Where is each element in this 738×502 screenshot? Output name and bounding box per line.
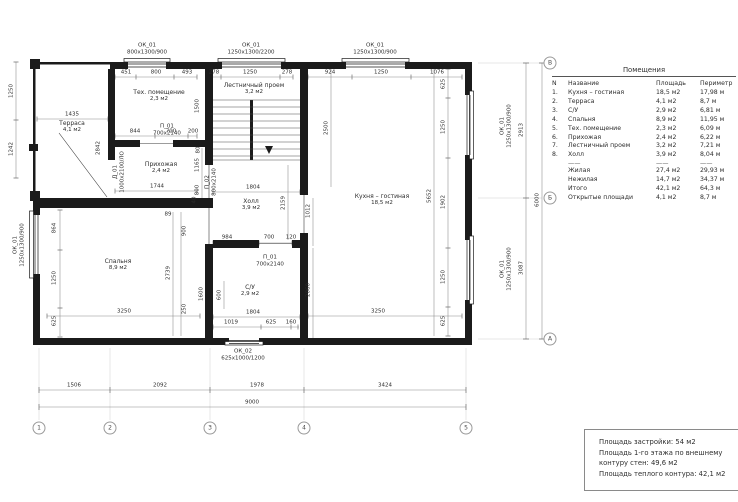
cell-perimeter: 8,04 м: [700, 151, 736, 160]
opening-code: ОК_01: [499, 247, 506, 291]
header-name: Название: [568, 79, 656, 89]
cell-num: [552, 167, 568, 176]
dimension-label: 278: [209, 70, 220, 77]
cell-area: 27,4 м2: [656, 167, 700, 176]
note-line: Площадь 1-го этажа по внешнему контуру с…: [599, 448, 737, 469]
cell-num: 6.: [552, 134, 568, 143]
cell-area: ——: [656, 160, 700, 167]
dimension-label: 1435: [65, 112, 79, 119]
cell-area: 2,3 м2: [656, 125, 700, 134]
dimension-label: 1250: [441, 120, 448, 134]
cell-perimeter: 29,93 м: [700, 167, 736, 176]
cell-name: Итого: [568, 185, 656, 194]
table-row: Жилая27,4 м229,93 м: [552, 167, 736, 176]
opening-code: П_02: [204, 168, 211, 196]
cell-num: 7.: [552, 142, 568, 151]
opening-size: 1250х1300/900: [19, 223, 26, 267]
cell-perimeter: 7,21 м: [700, 142, 736, 151]
opening-code: П_01: [256, 254, 284, 261]
cell-area: 3,9 м2: [656, 151, 700, 160]
area-notes-lines: Площадь застройки: 54 м2Площадь 1-го эта…: [599, 437, 737, 479]
room-name: Лестничный проем: [224, 82, 284, 89]
room-area: 4,1 м2: [59, 127, 85, 134]
dimension-label: 80: [196, 147, 203, 154]
rooms-table-header: N Название Площадь Периметр: [552, 79, 736, 89]
axis-bubble: 2: [104, 422, 117, 435]
dimension-label: 1165: [195, 158, 202, 172]
dimension-label: 2739: [166, 266, 173, 280]
room-area: 2,3 м2: [133, 96, 184, 103]
cell-area: 4,1 м2: [656, 194, 700, 203]
dimension-label: 900: [182, 226, 189, 237]
opening-label: П_01700х2140: [153, 123, 181, 136]
cell-num: 2.: [552, 98, 568, 107]
rooms-table-rule: [552, 76, 736, 77]
cell-perimeter: 34,37 м: [700, 176, 736, 185]
opening-size: 625х1000/1200: [221, 355, 265, 362]
room-label: Терраса4,1 м2: [59, 120, 85, 134]
dimension-label: 1250: [243, 70, 257, 77]
room-label: С/У2,9 м2: [241, 284, 259, 298]
dimension-label: 1600: [199, 287, 206, 301]
note-line: Площадь теплого контура: 42,1 м2: [599, 469, 737, 480]
table-row: 2.Терраса4,1 м28,7 м: [552, 98, 736, 107]
cell-perimeter: 11,95 м: [700, 116, 736, 125]
dimension-label: 1500: [195, 99, 202, 113]
opening-code: П_01: [153, 123, 181, 130]
dimension-label: 89: [165, 212, 172, 219]
opening-code: ОК_01: [227, 42, 274, 49]
cell-num: 3.: [552, 107, 568, 116]
cell-name: Спальня: [568, 116, 656, 125]
room-name: Спальня: [105, 258, 132, 265]
table-row: 5.Тех. помещение2,3 м26,09 м: [552, 125, 736, 134]
dimension-label: 5652: [427, 189, 434, 203]
cell-num: 1.: [552, 89, 568, 98]
dimension-label: 2092: [153, 383, 167, 390]
dimension-label: 3424: [378, 383, 392, 390]
room-label: Спальня8,9 м2: [105, 258, 132, 272]
opening-label: ОК_011250х1300/900: [499, 104, 512, 148]
opening-size: 800х2140: [211, 168, 218, 196]
dimension-label: 120: [286, 235, 297, 242]
cell-area: 3,2 м2: [656, 142, 700, 151]
cell-num: [552, 160, 568, 167]
rooms-table-title: Помещения: [552, 66, 736, 76]
dimension-label: 1019: [224, 320, 238, 327]
dimension-label: 600: [217, 290, 224, 301]
dimension-label: 3250: [371, 309, 385, 316]
dimension-label: 1242: [9, 142, 16, 156]
cell-name: С/У: [568, 107, 656, 116]
axis-bubble: А: [544, 333, 557, 346]
dimension-label: 625: [441, 79, 448, 90]
opening-label: П_02800х2140: [204, 168, 217, 196]
room-name: Холл: [242, 198, 260, 205]
dimension-label: 2842: [96, 141, 103, 155]
table-row: ——————: [552, 160, 736, 167]
cell-num: 8.: [552, 151, 568, 160]
room-area: 2,9 м2: [241, 291, 259, 298]
dimension-label: 1506: [67, 383, 81, 390]
cell-name: Лестничный проем: [568, 142, 656, 151]
cell-perimeter: 8,7 м: [700, 194, 736, 203]
header-num: N: [552, 79, 568, 89]
cell-name: Холл: [568, 151, 656, 160]
table-row: Итого42,1 м264,3 м: [552, 185, 736, 194]
dimension-label: 1250: [52, 271, 59, 285]
room-label: Холл3,9 м2: [242, 198, 260, 212]
dimension-label: 2159: [281, 196, 288, 210]
cell-num: [552, 194, 568, 203]
opening-label: ОК_011250х1300/900: [353, 42, 397, 55]
cell-name: ——: [568, 160, 656, 167]
stairs: [213, 100, 300, 160]
axis-bubble: 5: [460, 422, 473, 435]
dimension-label: 1012: [306, 204, 313, 218]
cell-name: Кухня – гостиная: [568, 89, 656, 98]
dimension-label: 6000: [535, 193, 542, 207]
dimension-label: 2060: [306, 283, 313, 297]
dimension-label: 800: [151, 70, 162, 77]
dimension-label: 1076: [430, 70, 444, 77]
dimension-label: 250: [182, 304, 189, 315]
opening-size: 1250х1300/900: [353, 49, 397, 56]
cell-area: 14,7 м2: [656, 176, 700, 185]
dimension-label: 451: [121, 70, 132, 77]
dimension-label: 278: [282, 70, 293, 77]
table-row: 3.С/У2,9 м26,81 м: [552, 107, 736, 116]
opening-size: 1250х1300/900: [506, 247, 513, 291]
axis-bubble: 4: [298, 422, 311, 435]
axis-bubble: 3: [204, 422, 217, 435]
opening-code: ОК_01: [353, 42, 397, 49]
cell-perimeter: 17,98 м: [700, 89, 736, 98]
dimension-label: 700: [264, 235, 275, 242]
dimension-label: 2500: [324, 121, 331, 135]
opening-label: ОК_011250х1300/2200: [227, 42, 274, 55]
opening-code: ОК_02: [221, 348, 265, 355]
room-name: Кухня – гостиная: [355, 193, 409, 200]
room-name: С/У: [241, 284, 259, 291]
cell-name: Нежилая: [568, 176, 656, 185]
opening-label: П_01700х2140: [256, 254, 284, 267]
cell-area: 42,1 м2: [656, 185, 700, 194]
opening-code: ОК_01: [127, 42, 167, 49]
header-perimeter: Периметр: [700, 79, 736, 89]
cell-name: Открытые площади: [568, 194, 656, 203]
cell-num: 4.: [552, 116, 568, 125]
cell-perimeter: 6,22 м: [700, 134, 736, 143]
dimension-label: 1250: [374, 70, 388, 77]
table-row: 7.Лестничный проем3,2 м27,21 м: [552, 142, 736, 151]
dimension-label: 1978: [250, 383, 264, 390]
room-label: Тех. помещение2,3 м2: [133, 89, 184, 103]
room-area: 18,5 м2: [355, 200, 409, 207]
table-row: Открытые площади4,1 м28,7 м: [552, 194, 736, 203]
area-notes-box: Площадь застройки: 54 м2Площадь 1-го эта…: [584, 429, 738, 491]
dimension-label: 9000: [245, 400, 259, 407]
room-label: Лестничный проем3,2 м2: [224, 82, 284, 96]
table-row: 1.Кухня – гостиная18,5 м217,98 м: [552, 89, 736, 98]
cell-num: [552, 185, 568, 194]
room-name: Тех. помещение: [133, 89, 184, 96]
dimension-label: 1744: [150, 184, 164, 191]
cell-num: [552, 176, 568, 185]
cell-area: 2,4 м2: [656, 134, 700, 143]
dimension-label: 3087: [519, 261, 526, 275]
room-area: 8,9 м2: [105, 265, 132, 272]
dimension-label: 2913: [519, 123, 526, 137]
opening-size: 1000х2100/ЛО: [119, 151, 126, 193]
opening-label: Д_011000х2100/ЛО: [112, 151, 125, 193]
rooms-table-rows: 1.Кухня – гостиная18,5 м217,98 м2.Террас…: [552, 89, 736, 203]
dimension-label: 625: [441, 316, 448, 327]
cell-perimeter: 64,3 м: [700, 185, 736, 194]
dimension-label: 625: [266, 320, 277, 327]
dimension-label: 3250: [117, 309, 131, 316]
room-label: Кухня – гостиная18,5 м2: [355, 193, 409, 207]
opening-size: 700х2140: [153, 130, 181, 137]
opening-label: ОК_011250х1300/900: [12, 223, 25, 267]
opening-size: 1250х1300/2200: [227, 49, 274, 56]
dimension-label: 864: [52, 223, 59, 234]
table-row: 8.Холл3,9 м28,04 м: [552, 151, 736, 160]
cell-name: Терраса: [568, 98, 656, 107]
dimension-label: 1250: [441, 270, 448, 284]
opening-size: 800х1300/900: [127, 49, 167, 56]
cell-area: 4,1 м2: [656, 98, 700, 107]
room-label: Прихожая2,4 м2: [145, 161, 177, 175]
dimension-label: 1902: [441, 195, 448, 209]
room-area: 3,9 м2: [242, 205, 260, 212]
room-area: 3,2 м2: [224, 89, 284, 96]
room-name: Прихожая: [145, 161, 177, 168]
cell-perimeter: 6,81 м: [700, 107, 736, 116]
opening-label: ОК_011250х1300/900: [499, 247, 512, 291]
cell-area: 18,5 м2: [656, 89, 700, 98]
opening-size: 1250х1300/900: [506, 104, 513, 148]
dimension-label: 40: [192, 197, 199, 204]
table-row: Нежилая14,7 м234,37 м: [552, 176, 736, 185]
dimension-label: 1804: [246, 185, 260, 192]
dimension-label: 160: [286, 320, 297, 327]
dimension-label: 625: [52, 316, 59, 327]
dimension-label: 984: [222, 235, 233, 242]
dimension-label: 493: [182, 70, 193, 77]
opening-code: ОК_01: [499, 104, 506, 148]
axis-bubble: 1: [33, 422, 46, 435]
floor-plan-sheet: 4518004932781250278924125010761435125012…: [0, 0, 738, 502]
dimension-label: 844: [130, 129, 141, 136]
cell-area: 8,9 м2: [656, 116, 700, 125]
cell-area: 2,9 м2: [656, 107, 700, 116]
cell-num: 5.: [552, 125, 568, 134]
opening-code: ОК_01: [12, 223, 19, 267]
dimension-label: 1804: [246, 310, 260, 317]
dimension-label: 924: [325, 70, 336, 77]
opening-label: ОК_02625х1000/1200: [221, 348, 265, 361]
dimension-label: 200: [188, 129, 199, 136]
header-area: Площадь: [656, 79, 700, 89]
cell-perimeter: 8,7 м: [700, 98, 736, 107]
room-area: 2,4 м2: [145, 168, 177, 175]
cell-name: Жилая: [568, 167, 656, 176]
dimension-label: 800: [195, 185, 202, 196]
note-line: Площадь застройки: 54 м2: [599, 437, 737, 448]
cell-perimeter: 6,09 м: [700, 125, 736, 134]
rooms-table: Помещения N Название Площадь Периметр 1.…: [552, 66, 736, 203]
opening-size: 700х2140: [256, 261, 284, 268]
stairs-direction-arrow: [265, 146, 273, 154]
room-name: Терраса: [59, 120, 85, 127]
dimension-label: 1250: [9, 84, 16, 98]
opening-code: Д_01: [112, 151, 119, 193]
cell-name: Тех. помещение: [568, 125, 656, 134]
cell-perimeter: ——: [700, 160, 736, 167]
opening-label: ОК_01800х1300/900: [127, 42, 167, 55]
table-row: 4.Спальня8,9 м211,95 м: [552, 116, 736, 125]
